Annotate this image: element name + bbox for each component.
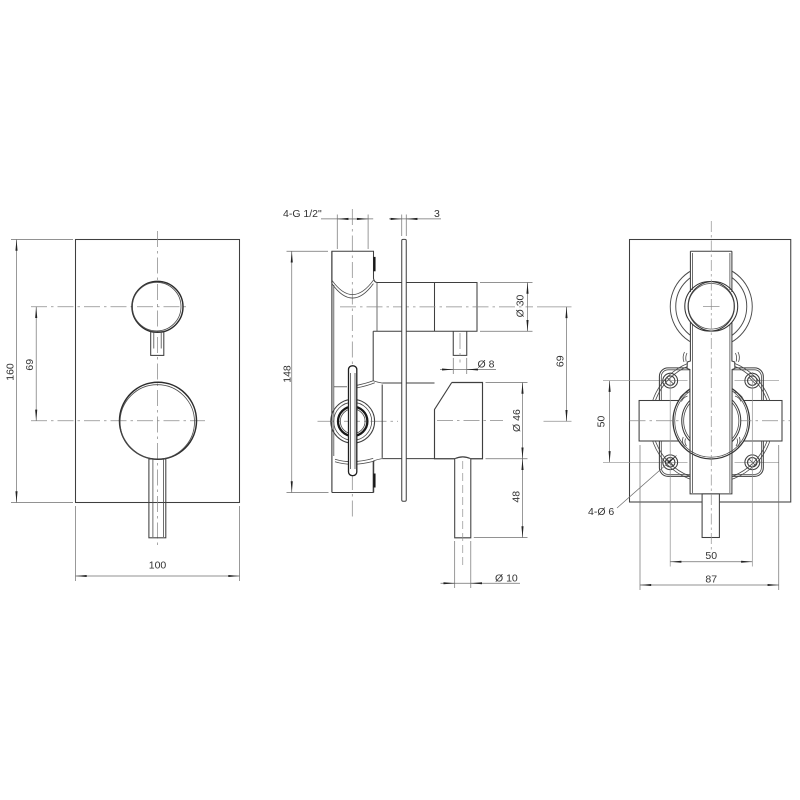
svg-text:4-G 1/2": 4-G 1/2" [283, 208, 322, 220]
svg-text:Ø 8: Ø 8 [478, 359, 495, 371]
svg-text:Ø 30: Ø 30 [515, 294, 527, 317]
svg-text:4-Ø 6: 4-Ø 6 [588, 506, 614, 518]
svg-text:48: 48 [510, 491, 522, 503]
svg-text:87: 87 [705, 573, 717, 585]
svg-text:100: 100 [149, 560, 167, 572]
svg-text:160: 160 [4, 363, 16, 381]
svg-text:148: 148 [282, 365, 294, 383]
svg-text:50: 50 [705, 550, 717, 562]
svg-text:Ø 46: Ø 46 [511, 409, 523, 432]
svg-text:69: 69 [24, 359, 36, 371]
svg-text:Ø 10: Ø 10 [495, 573, 518, 585]
svg-text:50: 50 [596, 416, 608, 428]
svg-text:3: 3 [434, 208, 440, 220]
svg-text:69: 69 [554, 355, 566, 367]
